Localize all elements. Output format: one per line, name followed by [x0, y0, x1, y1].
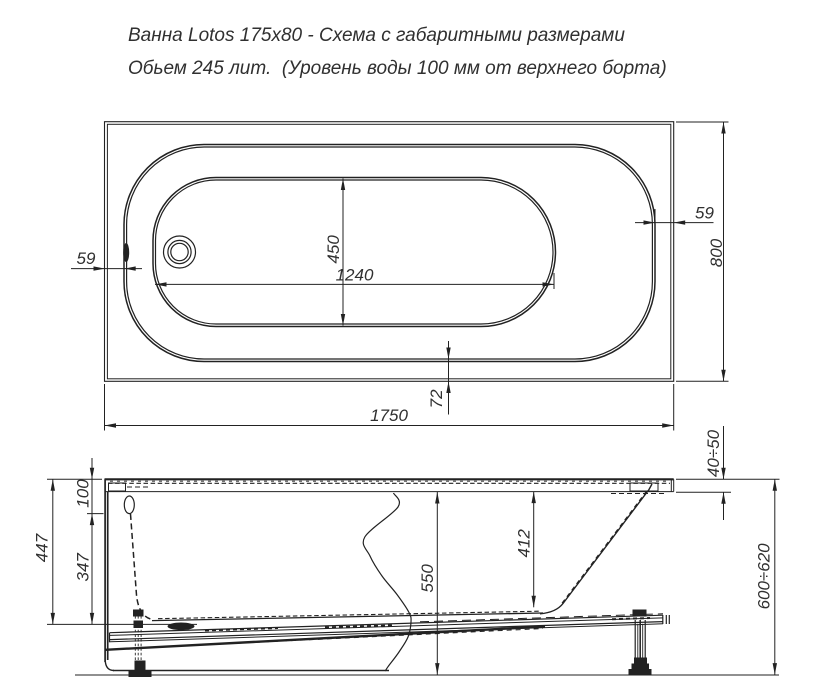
svg-text:447: 447 — [33, 533, 52, 562]
svg-text:59: 59 — [695, 204, 714, 223]
svg-text:40÷50: 40÷50 — [704, 429, 723, 477]
svg-text:550: 550 — [418, 564, 437, 593]
svg-text:100: 100 — [73, 479, 92, 508]
svg-text:800: 800 — [707, 238, 726, 267]
svg-text:450: 450 — [324, 235, 343, 264]
svg-text:72: 72 — [427, 389, 446, 408]
svg-text:1750: 1750 — [370, 406, 408, 425]
svg-text:412: 412 — [514, 529, 533, 558]
svg-text:600÷620: 600÷620 — [755, 543, 774, 610]
svg-text:1240: 1240 — [336, 266, 374, 285]
svg-text:347: 347 — [73, 553, 92, 582]
svg-text:59: 59 — [77, 249, 96, 268]
svg-text:Ванна Lotos 175x80 - Схема с г: Ванна Lotos 175x80 - Схема с габаритными… — [128, 25, 625, 46]
svg-text:Обьем 245 лит. (Уровень воды: Обьем 245 лит. (Уровень воды 100 мм от в… — [128, 58, 667, 79]
